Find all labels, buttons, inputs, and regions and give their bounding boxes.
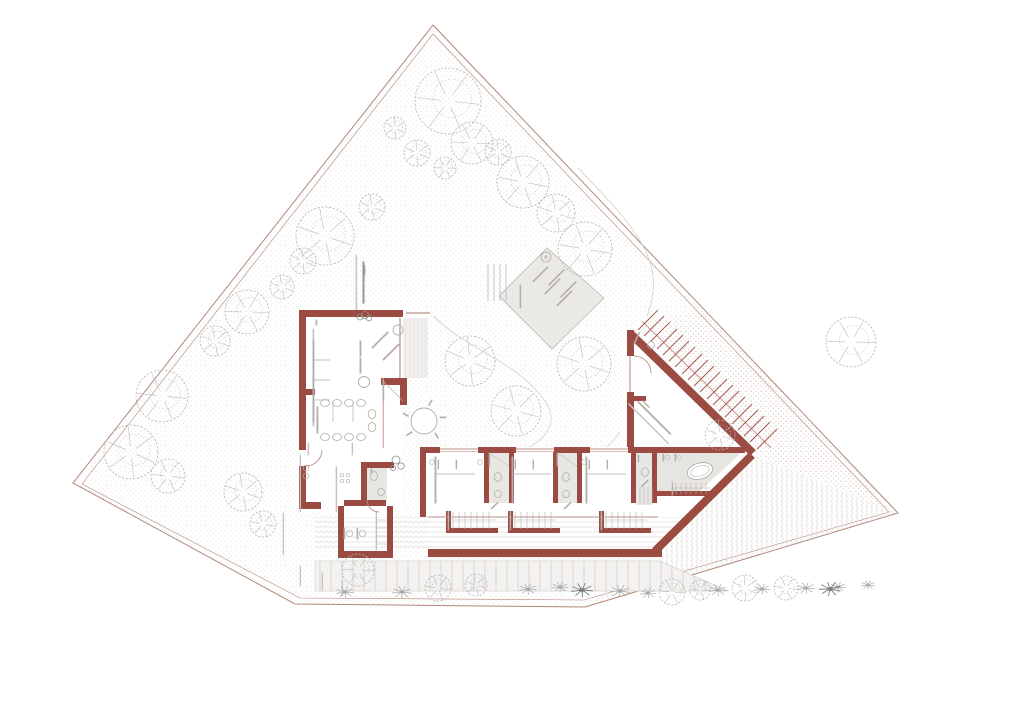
bath-sink xyxy=(675,454,676,461)
wall xyxy=(420,447,426,517)
ensuite2-floor xyxy=(557,453,577,503)
vanity xyxy=(638,455,639,462)
pillow xyxy=(515,460,516,469)
wall xyxy=(446,528,498,533)
shrub xyxy=(779,590,784,597)
tree xyxy=(854,347,863,363)
shrub xyxy=(745,591,746,600)
site-plan-svg xyxy=(0,0,1024,724)
wall xyxy=(631,452,636,503)
tree xyxy=(839,321,848,337)
pillow xyxy=(533,460,534,469)
floor-plan xyxy=(0,0,1024,724)
pillow xyxy=(589,460,590,469)
tree xyxy=(826,317,876,367)
shrub xyxy=(739,579,754,594)
wall xyxy=(361,462,367,506)
tree xyxy=(840,326,869,355)
wall xyxy=(361,462,394,468)
bed xyxy=(435,457,436,503)
pillow xyxy=(438,460,439,469)
stepping-stone xyxy=(300,566,301,586)
master-wardrobe xyxy=(672,482,673,495)
kitchen-island xyxy=(336,467,337,512)
east-terrace-lines xyxy=(400,318,428,378)
tree xyxy=(854,322,863,338)
shower xyxy=(489,453,490,466)
fireplace-box xyxy=(383,381,384,401)
wardrobe xyxy=(510,511,511,530)
pillow xyxy=(607,460,608,469)
stepping-stone xyxy=(322,573,323,590)
shrub xyxy=(782,577,785,585)
armchair xyxy=(360,341,361,356)
west-terrace xyxy=(283,513,284,555)
ensuite1-floor xyxy=(489,453,509,503)
shrub xyxy=(788,579,793,586)
dryer xyxy=(357,528,358,539)
tv-console xyxy=(316,320,317,325)
wall xyxy=(577,452,582,503)
armchair xyxy=(360,358,361,373)
shrub xyxy=(735,590,743,595)
wall xyxy=(299,502,321,509)
shrub xyxy=(789,588,798,589)
wall xyxy=(554,447,590,453)
wall xyxy=(599,528,651,533)
wall xyxy=(338,506,344,558)
wall xyxy=(420,447,440,453)
shrub xyxy=(744,576,745,585)
shrub xyxy=(665,594,670,602)
bed xyxy=(512,457,513,503)
wall xyxy=(400,378,407,405)
wardrobe xyxy=(601,511,602,530)
shrub xyxy=(673,595,677,604)
tree xyxy=(839,347,848,363)
shrub xyxy=(775,586,784,587)
bed xyxy=(586,457,587,503)
dining-table xyxy=(317,407,318,433)
timber-deck-boards xyxy=(315,561,729,591)
wall xyxy=(657,491,713,496)
shower xyxy=(557,453,558,466)
wall xyxy=(299,310,403,317)
bath-sink xyxy=(663,454,664,461)
wall xyxy=(299,310,306,450)
wardrobe xyxy=(448,511,449,530)
washer xyxy=(344,528,345,539)
shrub xyxy=(675,592,684,593)
kitchen-tall-unit xyxy=(352,443,353,455)
shrub xyxy=(734,583,743,587)
wall xyxy=(484,452,489,503)
wall xyxy=(652,452,657,503)
south-wall xyxy=(428,549,662,557)
pool-ladder xyxy=(364,266,365,275)
wall xyxy=(338,551,393,558)
shrub xyxy=(787,590,790,598)
kitchen-counter xyxy=(308,443,309,455)
pillow xyxy=(456,460,457,469)
sofa-bottom xyxy=(313,402,314,422)
patio-chair xyxy=(440,417,446,418)
wall xyxy=(344,500,386,506)
pool-surround xyxy=(356,255,357,311)
pool-house xyxy=(520,285,521,308)
wc-cistern xyxy=(371,469,372,473)
patio-table xyxy=(411,408,437,434)
wall xyxy=(387,506,393,558)
shrub xyxy=(701,592,704,599)
kitchen-counter xyxy=(300,455,301,512)
south-corridor-floor xyxy=(315,517,687,551)
wall xyxy=(630,396,646,401)
wall xyxy=(508,528,560,533)
